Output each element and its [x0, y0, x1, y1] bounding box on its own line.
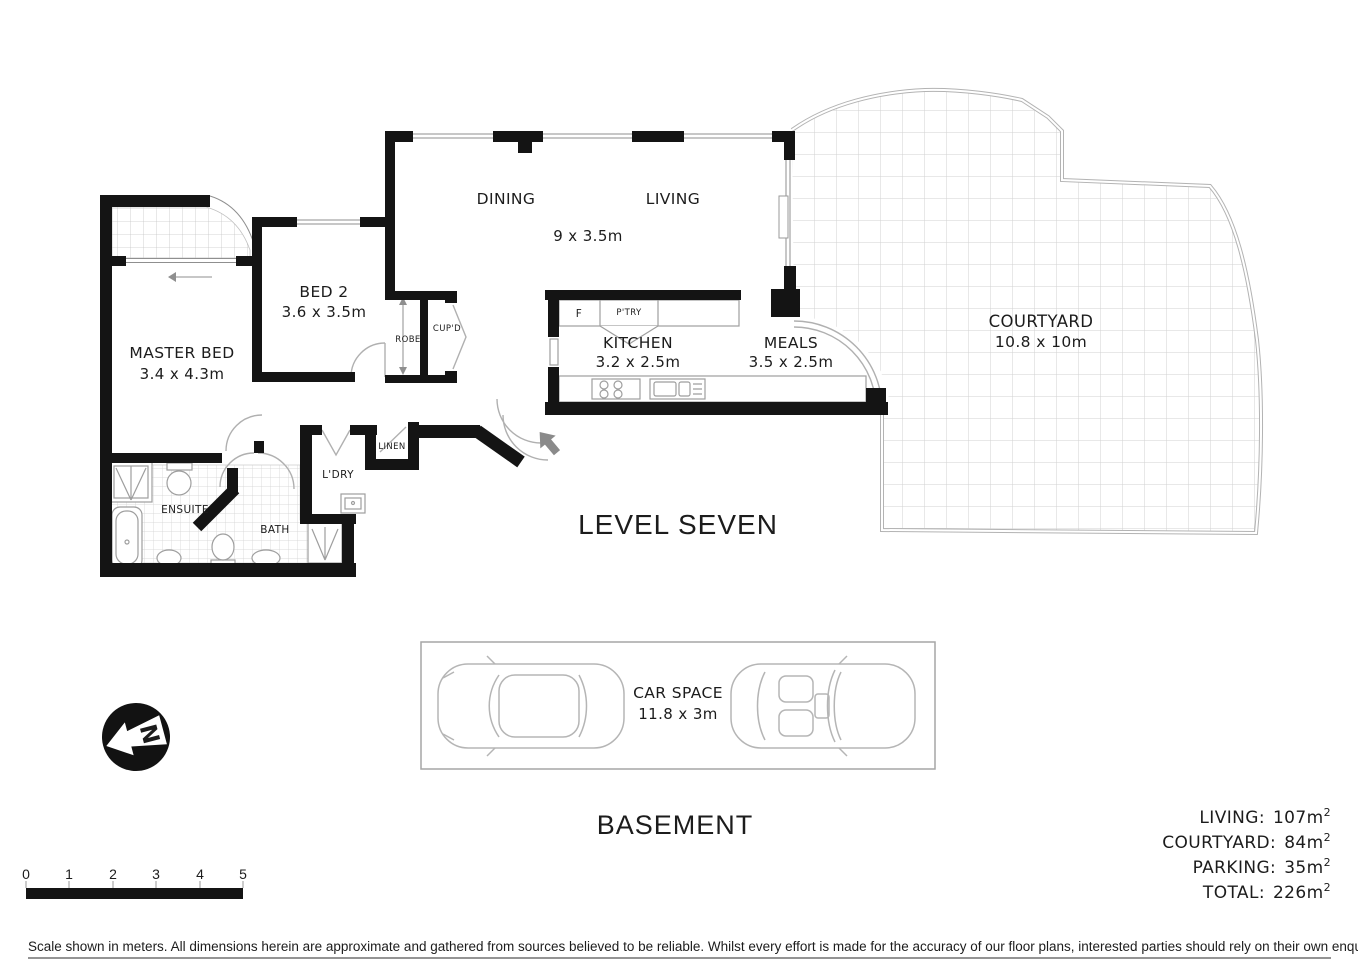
- laundry-doors: [322, 430, 350, 455]
- area-line-parking: PARKING:35m2: [1193, 856, 1331, 878]
- label-living: LIVING: [646, 190, 700, 208]
- label-robe: ROBE: [395, 335, 420, 345]
- label-laundry: L'DRY: [322, 469, 354, 481]
- kitchen-counter-bottom: [559, 376, 866, 402]
- north-compass-icon: N: [94, 695, 177, 778]
- scale-tick-4: 4: [196, 866, 204, 882]
- scale-tick-2: 2: [109, 866, 117, 882]
- bathtub-icon: [112, 507, 142, 568]
- label-fridge: F: [576, 308, 582, 320]
- sink-icon: [650, 379, 705, 399]
- level-title: LEVEL SEVEN: [578, 509, 778, 540]
- label-living-dims: 9 x 3.5m: [553, 227, 623, 245]
- label-meals-dims: 3.5 x 2.5m: [749, 353, 834, 371]
- area-summary: LIVING:107m2 COURTYARD:84m2 PARKING:35m2…: [1162, 806, 1331, 903]
- disclaimer-text: Scale shown in meters. All dimensions he…: [28, 939, 1358, 954]
- label-kitchen: KITCHEN: [603, 334, 673, 352]
- scale-bar: 0 1 2 3 4 5: [22, 866, 247, 899]
- label-courtyard-dims: 10.8 x 10m: [995, 333, 1087, 351]
- area-line-living: LIVING:107m2: [1199, 806, 1331, 828]
- window-pane: [779, 196, 788, 238]
- shower2-icon: [308, 523, 342, 563]
- label-meals: MEALS: [764, 334, 818, 352]
- toilet2-icon: [211, 534, 235, 566]
- wall-diagonal-entry: [477, 431, 521, 462]
- scale-bar-rule: [26, 888, 243, 899]
- scale-tick-0: 0: [22, 866, 30, 882]
- label-bed2-dims: 3.6 x 3.5m: [282, 303, 367, 321]
- stove-icon: [592, 379, 640, 399]
- toilet-icon: [167, 463, 192, 495]
- label-bed2: BED 2: [299, 283, 348, 301]
- balcony-slider-arrowhead: [168, 272, 176, 282]
- area-line-courtyard: COURTYARD:84m2: [1162, 831, 1331, 853]
- label-cupboard: CUP'D: [433, 324, 461, 334]
- car-icon-right: [731, 656, 915, 756]
- label-pantry: P'TRY: [616, 308, 642, 318]
- balcony-tiles: [112, 207, 250, 258]
- label-linen: LINEN: [378, 442, 405, 452]
- label-courtyard: COURTYARD: [989, 312, 1094, 331]
- floor-plan-page: DINING LIVING 9 x 3.5m BED 2 3.6 x 3.5m …: [0, 0, 1358, 960]
- laundry-tub-icon: [341, 494, 365, 513]
- label-ensuite: ENSUITE: [161, 504, 209, 516]
- area-line-total: TOTAL:226m2: [1202, 881, 1331, 903]
- car-space-label: CAR SPACE: [633, 684, 723, 702]
- label-kitchen-dims: 3.2 x 2.5m: [596, 353, 681, 371]
- label-master: MASTER BED: [129, 344, 234, 362]
- scale-tick-1: 1: [65, 866, 73, 882]
- cupboard-bifold: [453, 305, 466, 369]
- scale-tick-5: 5: [239, 866, 247, 882]
- disclaimer-block: Scale shown in meters. All dimensions he…: [28, 939, 1358, 958]
- label-dining: DINING: [477, 190, 536, 208]
- basement-title: BASEMENT: [597, 810, 754, 840]
- scale-tick-3: 3: [152, 866, 160, 882]
- floor-plan-drawing: DINING LIVING 9 x 3.5m BED 2 3.6 x 3.5m …: [0, 0, 1358, 960]
- shower-icon: [110, 462, 152, 502]
- label-master-dims: 3.4 x 4.3m: [140, 365, 225, 383]
- label-bath: BATH: [260, 524, 289, 536]
- balcony-area: [112, 196, 254, 282]
- car-space-dims: 11.8 x 3m: [638, 705, 718, 723]
- bed2-door-arc: [351, 343, 385, 377]
- car-space-area: CAR SPACE 11.8 x 3m BASEMENT: [421, 642, 935, 840]
- car-icon-left: [438, 656, 624, 756]
